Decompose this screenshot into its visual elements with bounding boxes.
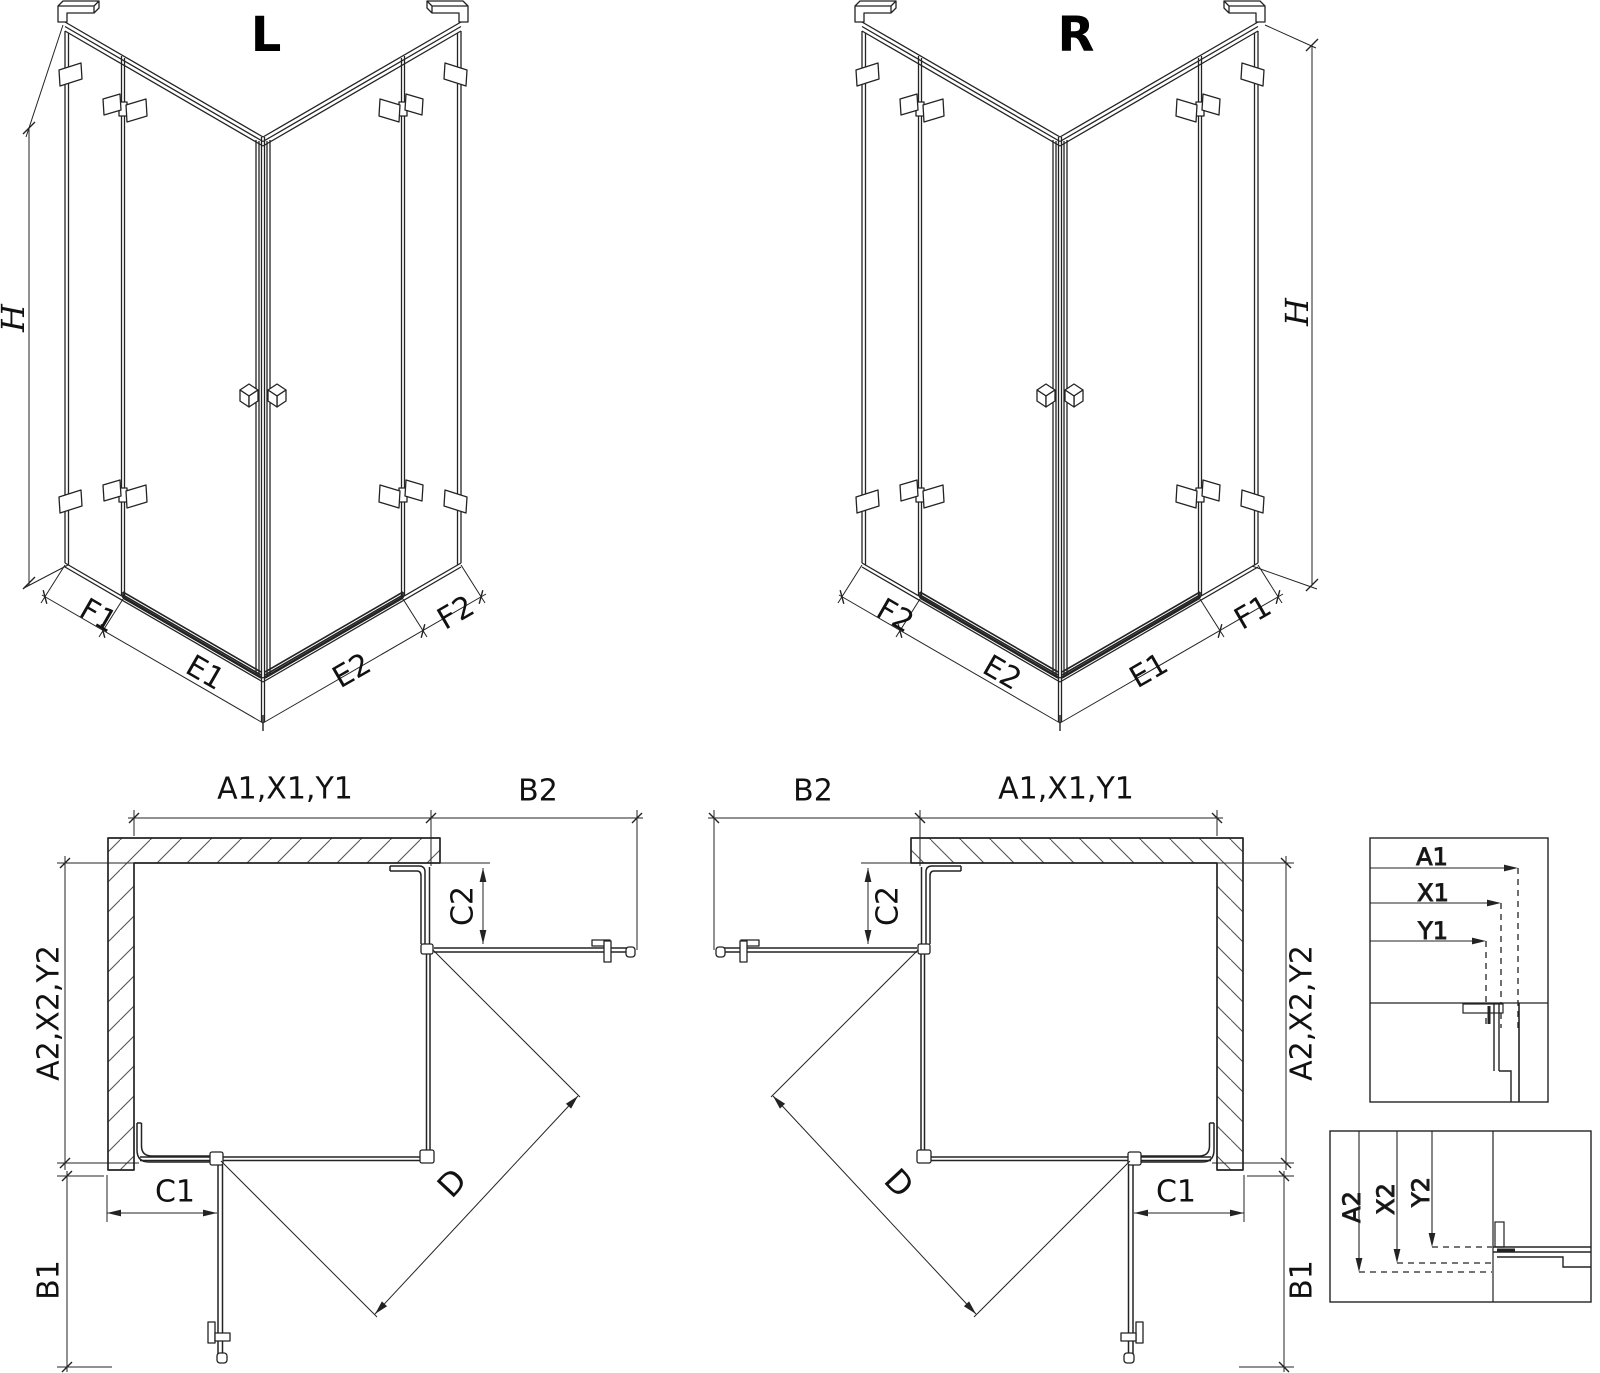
iso-left-e2-label: E2 <box>327 646 377 695</box>
iso-left-f2-label: F2 <box>432 589 481 637</box>
detail-width-a1-label: A1 <box>1416 843 1448 871</box>
plan-right-diagonal-label: D <box>877 1161 922 1205</box>
plan-right-door1-width-label: B1 <box>1285 1260 1320 1300</box>
plan-view-left: A1,X1,Y1 B2 C2 A2,X2,Y2 C1 B1 D <box>32 772 644 1373</box>
plan-left-door1-width-label: B1 <box>32 1260 67 1300</box>
iso-left-title: L <box>251 7 282 63</box>
plan-right-c2-label: C2 <box>871 886 906 926</box>
plan-right-door2-width-label: B2 <box>793 774 833 809</box>
plan-left-depth-label: A2,X2,Y2 <box>32 945 67 1081</box>
plan-left-c2-label: C2 <box>446 886 481 926</box>
iso-left-height-label: H <box>0 303 32 333</box>
plan-left-door2-width-label: B2 <box>518 774 558 809</box>
detail-width-x1-label: X1 <box>1417 879 1449 907</box>
plan-right-width-label: A1,X1,Y1 <box>998 772 1134 807</box>
shower-enclosure-dimension-drawing: L H F1 E1 E2 F2 R H F2 E2 E1 F1 A1,X1,Y1… <box>0 0 1600 1373</box>
iso-view-left: L H F1 E1 E2 F2 <box>0 1 486 731</box>
plan-right-depth-label: A2,X2,Y2 <box>1285 945 1320 1081</box>
plan-right-c1-label: C1 <box>1156 1175 1196 1210</box>
iso-view-right: R H F2 E2 E1 F1 <box>838 1 1318 731</box>
detail-depth-y2-label: Y2 <box>1407 1177 1435 1208</box>
iso-right-f2-label: F2 <box>871 592 920 640</box>
iso-right-e1-label: E1 <box>1124 646 1174 695</box>
detail-depth-x2-label: X2 <box>1372 1183 1400 1215</box>
detail-depth-a2-label: A2 <box>1338 1191 1366 1223</box>
detail-depth-references: A2 X2 Y2 <box>1330 1131 1591 1302</box>
plan-view-right: B2 A1,X1,Y1 C2 A2,X2,Y2 C1 B1 D <box>708 772 1320 1373</box>
plan-left-c1-label: C1 <box>155 1175 195 1210</box>
iso-right-title: R <box>1058 7 1095 63</box>
detail-width-y1-label: Y1 <box>1417 917 1448 945</box>
detail-width-references: A1 X1 Y1 <box>1370 838 1548 1102</box>
iso-right-height-label: H <box>1278 297 1316 327</box>
plan-left-width-label: A1,X1,Y1 <box>217 772 353 807</box>
iso-left-f1-label: F1 <box>74 592 123 640</box>
iso-right-f1-label: F1 <box>1229 589 1278 637</box>
plan-left-diagonal-label: D <box>430 1161 475 1205</box>
